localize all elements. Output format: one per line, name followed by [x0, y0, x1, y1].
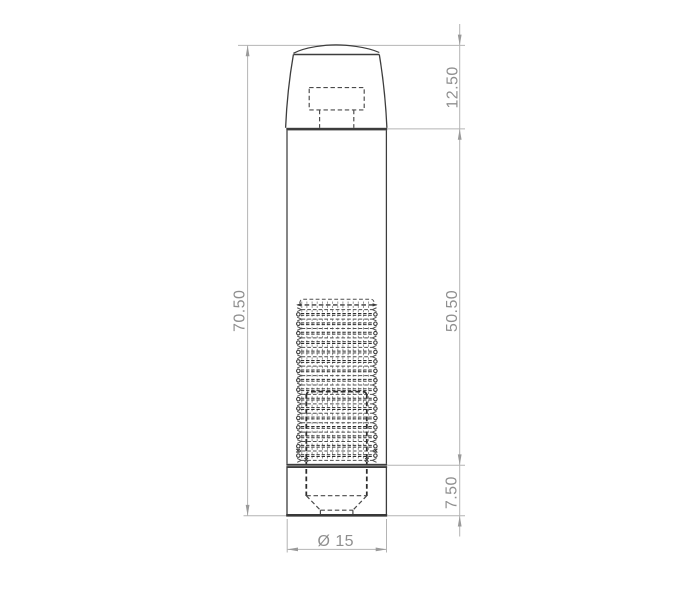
- svg-text:Ø 15: Ø 15: [318, 533, 355, 550]
- svg-text:50.50: 50.50: [444, 290, 461, 332]
- svg-text:70.50: 70.50: [231, 290, 248, 332]
- svg-text:12.50: 12.50: [444, 66, 461, 108]
- svg-text:7.50: 7.50: [443, 476, 460, 509]
